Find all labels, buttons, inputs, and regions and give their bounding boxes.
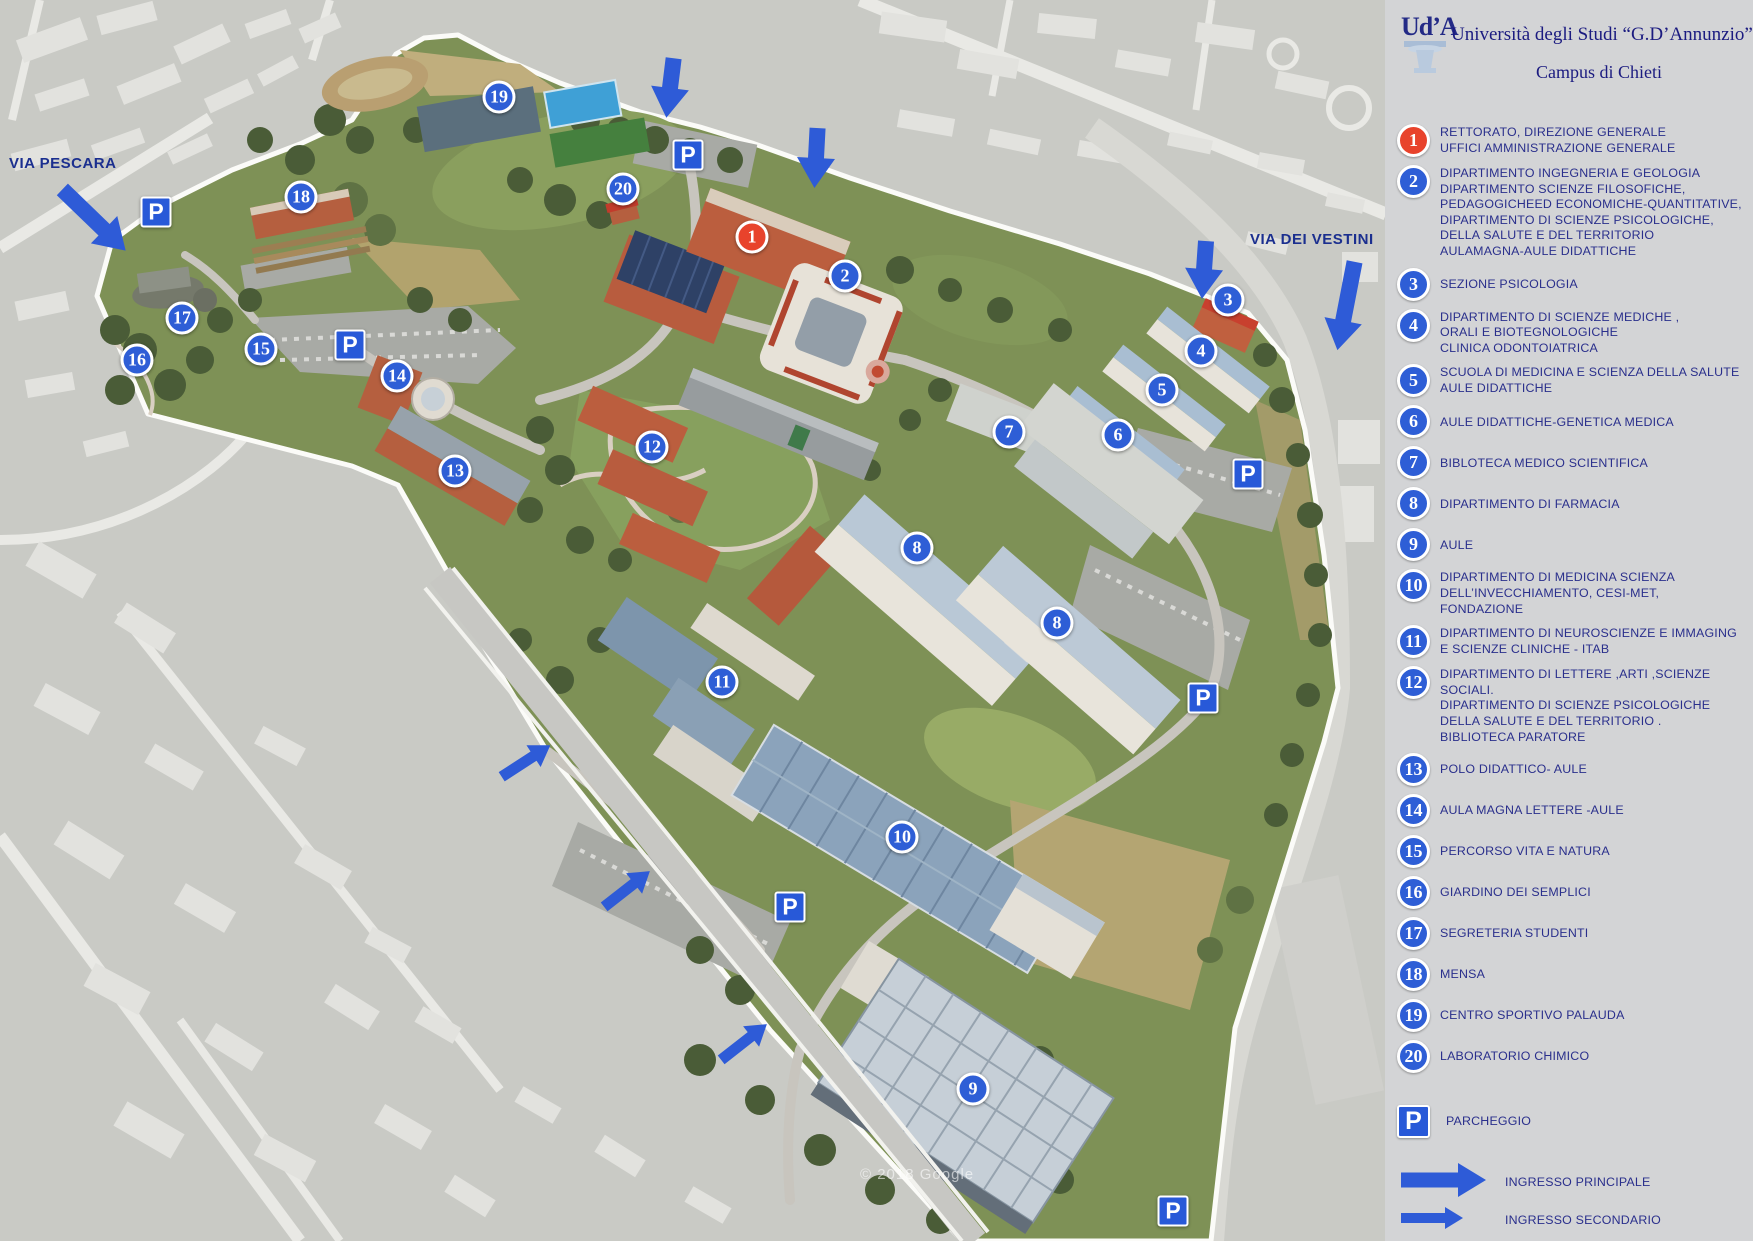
legend-badge-2: 2 [1397, 165, 1430, 198]
legend-item-5: 5SCUOLA DI MEDICINA E SCIENZA DELLA SALU… [1397, 364, 1749, 397]
legend-badge-15: 15 [1397, 835, 1430, 868]
map-marker-12: 12 [636, 431, 669, 464]
map-marker-9: 9 [957, 1073, 990, 1106]
map-marker-6: 6 [1102, 419, 1135, 452]
legend-item-text: BIBLOTECA MEDICO SCIENTIFICA [1440, 455, 1648, 472]
legend-item-text: GIARDINO DEI SEMPLICI [1440, 884, 1591, 901]
legend-badge-7: 7 [1397, 446, 1430, 479]
map-parking-sign: P [775, 892, 806, 923]
legend-item-text: POLO DIDATTICO- AULE [1440, 761, 1587, 778]
legend-item-2: 2DIPARTIMENTO INGEGNERIA E GEOLOGIADIPAR… [1397, 165, 1749, 260]
map-parking-sign: P [1233, 459, 1264, 490]
legend-item-6: 6AULE DIDATTICHE-GENETICA MEDICA [1397, 405, 1749, 438]
legend-item-18: 18MENSA [1397, 958, 1749, 991]
legend-item-text: DIPARTIMENTO DI FARMACIA [1440, 496, 1620, 513]
legend-main-entrance-row: INGRESSO PRINCIPALE [1401, 1164, 1650, 1200]
map-marker-2: 2 [829, 260, 862, 293]
street-label-via-pescara: VIA PESCARA [9, 155, 116, 172]
legend-item-3: 3 SEZIONE PSICOLOGIA [1397, 268, 1749, 301]
map-marker-15: 15 [245, 333, 278, 366]
legend-badge-12: 12 [1397, 666, 1430, 699]
aerial-imagery [0, 0, 1386, 1241]
legend-badge-3: 3 [1397, 268, 1430, 301]
campus-map-page: VIA PESCARAVIA DEI VESTINI 1234567889101… [0, 0, 1753, 1241]
legend-badge-9: 9 [1397, 528, 1430, 561]
legend-badge-16: 16 [1397, 876, 1430, 909]
map-parking-sign: P [673, 140, 704, 171]
parking-label: PARCHEGGIO [1446, 1113, 1531, 1130]
legend-item-text: SEZIONE PSICOLOGIA [1440, 276, 1578, 293]
university-logo: Ud’A [1401, 14, 1449, 79]
legend-item-text: DIPARTIMENTO DI LETTERE ,ARTI ,SCIENZESO… [1440, 666, 1710, 745]
map-parking-sign: P [335, 330, 366, 361]
legend-item-15: 15PERCORSO VITA E NATURA [1397, 835, 1749, 868]
legend-badge-10: 10 [1397, 569, 1430, 602]
legend-item-text: AULE DIDATTICHE-GENETICA MEDICA [1440, 414, 1674, 431]
legend-item-16: 16GIARDINO DEI SEMPLICI [1397, 876, 1749, 909]
map-parking-sign: P [141, 197, 172, 228]
legend-item-text: CENTRO SPORTIVO PALAUDA [1440, 1007, 1625, 1024]
legend-item-12: 12DIPARTIMENTO DI LETTERE ,ARTI ,SCIENZE… [1397, 666, 1749, 745]
legend-item-1: 1RETTORATO, DIREZIONE GENERALEUFFICI AMM… [1397, 124, 1749, 157]
legend-badge-17: 17 [1397, 917, 1430, 950]
map-marker-1: 1 [736, 221, 769, 254]
legend-badge-4: 4 [1397, 309, 1430, 342]
legend-item-13: 13POLO DIDATTICO- AULE [1397, 753, 1749, 786]
legend-secondary-entrance-row: INGRESSO SECONDARIO [1401, 1202, 1661, 1238]
main-entrance-label: INGRESSO PRINCIPALE [1505, 1174, 1650, 1191]
legend-item-20: 20LABORATORIO CHIMICO [1397, 1040, 1749, 1073]
legend-items: 1RETTORATO, DIREZIONE GENERALEUFFICI AMM… [1397, 124, 1749, 1081]
legend-item-text: RETTORATO, DIREZIONE GENERALEUFFICI AMMI… [1440, 124, 1675, 157]
map-marker-16: 16 [121, 344, 154, 377]
legend-item-text: PERCORSO VITA E NATURA [1440, 843, 1610, 860]
street-label-via-dei-vestini: VIA DEI VESTINI [1250, 231, 1374, 248]
map-marker-13: 13 [439, 455, 472, 488]
legend-badge-18: 18 [1397, 958, 1430, 991]
legend-item-text: SCUOLA DI MEDICINA E SCIENZA DELLA SALUT… [1440, 364, 1739, 397]
legend-item-text: DIPARTIMENTO DI SCIENZE MEDICHE ,ORALI E… [1440, 309, 1679, 357]
legend-item-text: MENSA [1440, 966, 1485, 983]
secondary-entrance-arrow-icon [1401, 1207, 1505, 1234]
legend-badge-1: 1 [1397, 124, 1430, 157]
secondary-entrance-label: INGRESSO SECONDARIO [1505, 1212, 1661, 1229]
legend-parking-row: P PARCHEGGIO [1397, 1105, 1531, 1138]
campus-aerial-map: VIA PESCARAVIA DEI VESTINI 1234567889101… [0, 0, 1386, 1241]
parking-icon: P [1397, 1105, 1430, 1138]
map-parking-sign: P [1158, 1196, 1189, 1227]
map-marker-7: 7 [993, 416, 1026, 449]
legend-badge-14: 14 [1397, 794, 1430, 827]
legend-badge-5: 5 [1397, 364, 1430, 397]
logo-text: Ud’A [1401, 14, 1449, 40]
legend-item-8: 8DIPARTIMENTO DI FARMACIA [1397, 487, 1749, 520]
legend-badge-8: 8 [1397, 487, 1430, 520]
main-entrance-arrow-icon [1401, 1163, 1505, 1202]
legend-item-17: 17SEGRETERIA STUDENTI [1397, 917, 1749, 950]
legend-item-7: 7BIBLOTECA MEDICO SCIENTIFICA [1397, 446, 1749, 479]
legend-item-text: SEGRETERIA STUDENTI [1440, 925, 1588, 942]
map-marker-17: 17 [166, 302, 199, 335]
university-title: Università degli Studi “G.D’Annunzio” [1451, 24, 1747, 46]
map-marker-5: 5 [1146, 374, 1179, 407]
legend-item-4: 4DIPARTIMENTO DI SCIENZE MEDICHE ,ORALI … [1397, 309, 1749, 357]
legend-item-text: AULE [1440, 537, 1473, 554]
campus-subtitle: Campus di Chieti [1451, 62, 1747, 83]
google-watermark: © 2018 Google [860, 1166, 974, 1183]
legend-badge-6: 6 [1397, 405, 1430, 438]
legend-panel: Ud’A Università degli Studi “G.D’Annunzi… [1385, 0, 1753, 1241]
map-marker-19: 19 [483, 81, 516, 114]
legend-item-11: 11DIPARTIMENTO DI NEUROSCIENZE E IMMAGIN… [1397, 625, 1749, 658]
legend-item-text: DIPARTIMENTO DI NEUROSCIENZE E IMMAGINGE… [1440, 625, 1737, 658]
legend-item-text: DIPARTIMENTO DI MEDICINA SCIENZADELL’INV… [1440, 569, 1675, 617]
map-marker-4: 4 [1185, 335, 1218, 368]
map-marker-20: 20 [607, 173, 640, 206]
legend-item-19: 19CENTRO SPORTIVO PALAUDA [1397, 999, 1749, 1032]
map-marker-8: 8 [1041, 607, 1074, 640]
legend-item-text: LABORATORIO CHIMICO [1440, 1048, 1589, 1065]
legend-item-text: DIPARTIMENTO INGEGNERIA E GEOLOGIADIPART… [1440, 165, 1742, 260]
legend-badge-11: 11 [1397, 625, 1430, 658]
map-marker-8: 8 [901, 532, 934, 565]
map-marker-18: 18 [285, 181, 318, 214]
legend-badge-13: 13 [1397, 753, 1430, 786]
legend-item-9: 9AULE [1397, 528, 1749, 561]
map-marker-11: 11 [706, 666, 739, 699]
legend-badge-20: 20 [1397, 1040, 1430, 1073]
logo-pedestal-icon [1401, 40, 1449, 74]
legend-badge-19: 19 [1397, 999, 1430, 1032]
legend-item-14: 14AULA MAGNA LETTERE -AULE [1397, 794, 1749, 827]
legend-item-10: 10DIPARTIMENTO DI MEDICINA SCIENZADELL’I… [1397, 569, 1749, 617]
map-marker-3: 3 [1212, 284, 1245, 317]
map-marker-10: 10 [886, 821, 919, 854]
map-parking-sign: P [1188, 683, 1219, 714]
legend-item-text: AULA MAGNA LETTERE -AULE [1440, 802, 1624, 819]
map-marker-14: 14 [381, 360, 414, 393]
